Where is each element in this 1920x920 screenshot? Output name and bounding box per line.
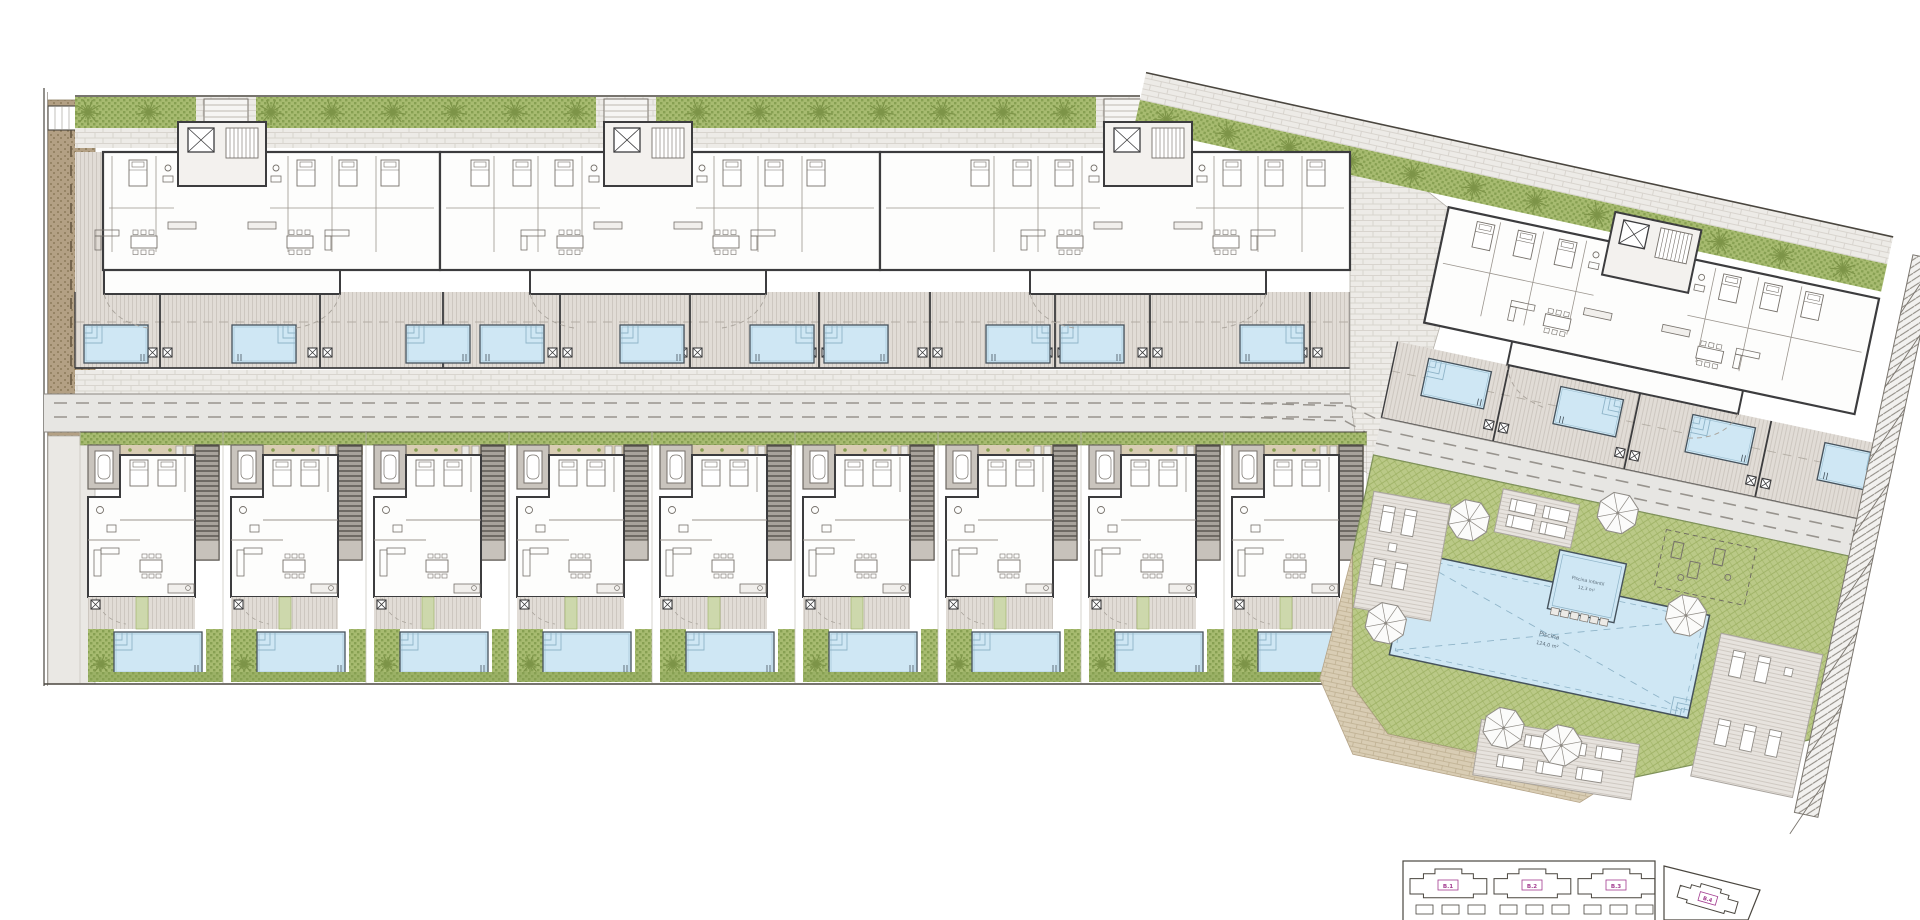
townhouse	[1081, 432, 1224, 683]
garden-hedge	[349, 629, 366, 676]
bed-icon	[765, 160, 783, 186]
townhouse-pool	[400, 632, 488, 674]
townhouse-pool	[972, 632, 1060, 674]
gate-post-icon	[1615, 447, 1626, 458]
front-hedge	[80, 432, 223, 445]
bath-patio	[1089, 445, 1121, 489]
stair-elevator-core	[604, 122, 692, 186]
private-pool	[1240, 325, 1304, 363]
gate-post-icon	[1498, 423, 1509, 434]
gate-post-icon	[548, 348, 557, 357]
townhouse-pool	[257, 632, 345, 674]
gate-post-icon	[1313, 348, 1322, 357]
kids-pool: Piscina infantil12,3 m²	[1546, 550, 1626, 628]
gate-post-icon	[949, 600, 958, 609]
bath-patio	[1232, 445, 1264, 489]
stair-strip	[910, 445, 934, 560]
townhouse	[223, 432, 366, 683]
private-pool	[986, 325, 1050, 363]
bed-icon	[1013, 160, 1031, 186]
gate-post-icon	[377, 600, 386, 609]
gate-post-icon	[1483, 419, 1494, 430]
townhouse	[795, 432, 938, 683]
bed-icon	[416, 460, 434, 486]
front-hedge	[1224, 432, 1367, 445]
bed-icon	[130, 460, 148, 486]
stair-strip	[624, 445, 648, 560]
front-hedge	[652, 432, 795, 445]
gate-post-icon	[663, 600, 672, 609]
gate-post-icon	[1760, 478, 1771, 489]
bed-icon	[988, 460, 1006, 486]
gate-post-icon	[520, 600, 529, 609]
front-hedge	[223, 432, 366, 445]
garden-hedge	[492, 629, 509, 676]
bed-icon	[273, 460, 291, 486]
gate-post-icon	[234, 600, 243, 609]
gate-post-icon	[918, 348, 927, 357]
bed-icon	[971, 160, 989, 186]
bed-icon	[873, 460, 891, 486]
rear-deck	[517, 597, 624, 629]
rear-deck	[946, 597, 1053, 629]
bed-icon	[559, 460, 577, 486]
bed-icon	[845, 460, 863, 486]
rear-deck	[1232, 597, 1339, 629]
bed-icon	[723, 160, 741, 186]
bath-patio	[374, 445, 406, 489]
bath-patio	[88, 445, 120, 489]
stair-strip	[1196, 445, 1220, 560]
private-pool	[232, 325, 296, 363]
bed-icon	[702, 460, 720, 486]
rear-deck	[1089, 597, 1196, 629]
bed-icon	[1302, 460, 1320, 486]
townhouse	[366, 432, 509, 683]
rear-deck	[88, 597, 195, 629]
gate-post-icon	[1153, 348, 1162, 357]
gate-post-icon	[806, 600, 815, 609]
bath-patio	[946, 445, 978, 489]
garden-hedge	[1064, 629, 1081, 676]
corner-utility-box	[48, 106, 76, 130]
garden-hedge	[206, 629, 223, 676]
gate-post-icon	[1092, 600, 1101, 609]
gate-post-icon	[1138, 348, 1147, 357]
gate-post-icon	[308, 348, 317, 357]
townhouse	[80, 432, 223, 683]
sidewalk	[75, 370, 1362, 394]
entry-steps	[204, 99, 248, 123]
rear-deck	[803, 597, 910, 629]
townhouse-pool	[543, 632, 631, 674]
front-hedge	[795, 432, 938, 445]
entry-steps	[604, 99, 648, 123]
bed-icon	[513, 160, 531, 186]
stair-strip	[195, 445, 219, 560]
garden-hedge	[921, 629, 938, 676]
front-hedge	[366, 432, 509, 445]
bed-icon	[1265, 160, 1283, 186]
gate-post-icon	[163, 348, 172, 357]
bed-icon	[297, 160, 315, 186]
townhouse-pool	[829, 632, 917, 674]
terrace-deck	[75, 292, 1350, 368]
bed-icon	[1223, 160, 1241, 186]
bed-icon	[1131, 460, 1149, 486]
front-hedge	[1081, 432, 1224, 445]
bed-icon	[471, 160, 489, 186]
private-pool	[620, 325, 684, 363]
front-hedge	[938, 432, 1081, 445]
townhouse	[652, 432, 795, 683]
private-pool	[480, 325, 544, 363]
stair-strip	[1053, 445, 1077, 560]
bath-patio	[231, 445, 263, 489]
rear-deck	[374, 597, 481, 629]
townhouse	[938, 432, 1081, 683]
key-plan-label: B.2	[1527, 884, 1537, 890]
bed-icon	[587, 460, 605, 486]
bed-icon	[444, 460, 462, 486]
bed-icon	[129, 160, 147, 186]
private-pool	[1060, 325, 1124, 363]
stair-elevator-core	[178, 122, 266, 186]
bed-icon	[1307, 160, 1325, 186]
floor-plan-canvas: Piscina124,0 m²Piscina infantil12,3 m²B.…	[0, 0, 1920, 920]
bed-icon	[301, 460, 319, 486]
bed-icon	[158, 460, 176, 486]
private-pool	[750, 325, 814, 363]
gate-post-icon	[933, 348, 942, 357]
stair-strip	[338, 445, 362, 560]
bed-icon	[807, 160, 825, 186]
site-plan-page: Piscina124,0 m²Piscina infantil12,3 m²B.…	[0, 0, 1920, 920]
gate-post-icon	[148, 348, 157, 357]
bed-icon	[1159, 460, 1177, 486]
townhouse-pool	[114, 632, 202, 674]
townhouse-pool	[686, 632, 774, 674]
townhouse	[509, 432, 652, 683]
rear-deck	[660, 597, 767, 629]
private-pool	[824, 325, 888, 363]
garden-hedge	[635, 629, 652, 676]
private-pool	[406, 325, 470, 363]
gate-post-icon	[1629, 450, 1640, 461]
bed-icon	[1016, 460, 1034, 486]
gate-post-icon	[1235, 600, 1244, 609]
stair-strip	[767, 445, 791, 560]
private-pool	[84, 325, 148, 363]
stair-elevator-core	[1104, 122, 1192, 186]
bed-icon	[1274, 460, 1292, 486]
gate-post-icon	[563, 348, 572, 357]
bed-icon	[555, 160, 573, 186]
bed-icon	[381, 160, 399, 186]
front-hedge	[509, 432, 652, 445]
garden-hedge	[1207, 629, 1224, 676]
street	[44, 394, 1362, 432]
rear-deck	[231, 597, 338, 629]
gate-post-icon	[323, 348, 332, 357]
key-plan-label: B.1	[1443, 884, 1453, 890]
bed-icon	[339, 160, 357, 186]
bed-icon	[730, 460, 748, 486]
bath-patio	[517, 445, 549, 489]
bath-patio	[660, 445, 692, 489]
site-plan: Piscina124,0 m²Piscina infantil12,3 m²B.…	[0, 0, 1920, 920]
gate-post-icon	[1746, 475, 1757, 486]
gate-post-icon	[693, 348, 702, 357]
bath-patio	[803, 445, 835, 489]
stair-strip	[481, 445, 505, 560]
gate-post-icon	[91, 600, 100, 609]
garden-hedge	[778, 629, 795, 676]
bed-icon	[1055, 160, 1073, 186]
key-plan-label: B.3	[1611, 884, 1621, 890]
townhouse-row	[80, 432, 1367, 683]
townhouse-pool	[1115, 632, 1203, 674]
